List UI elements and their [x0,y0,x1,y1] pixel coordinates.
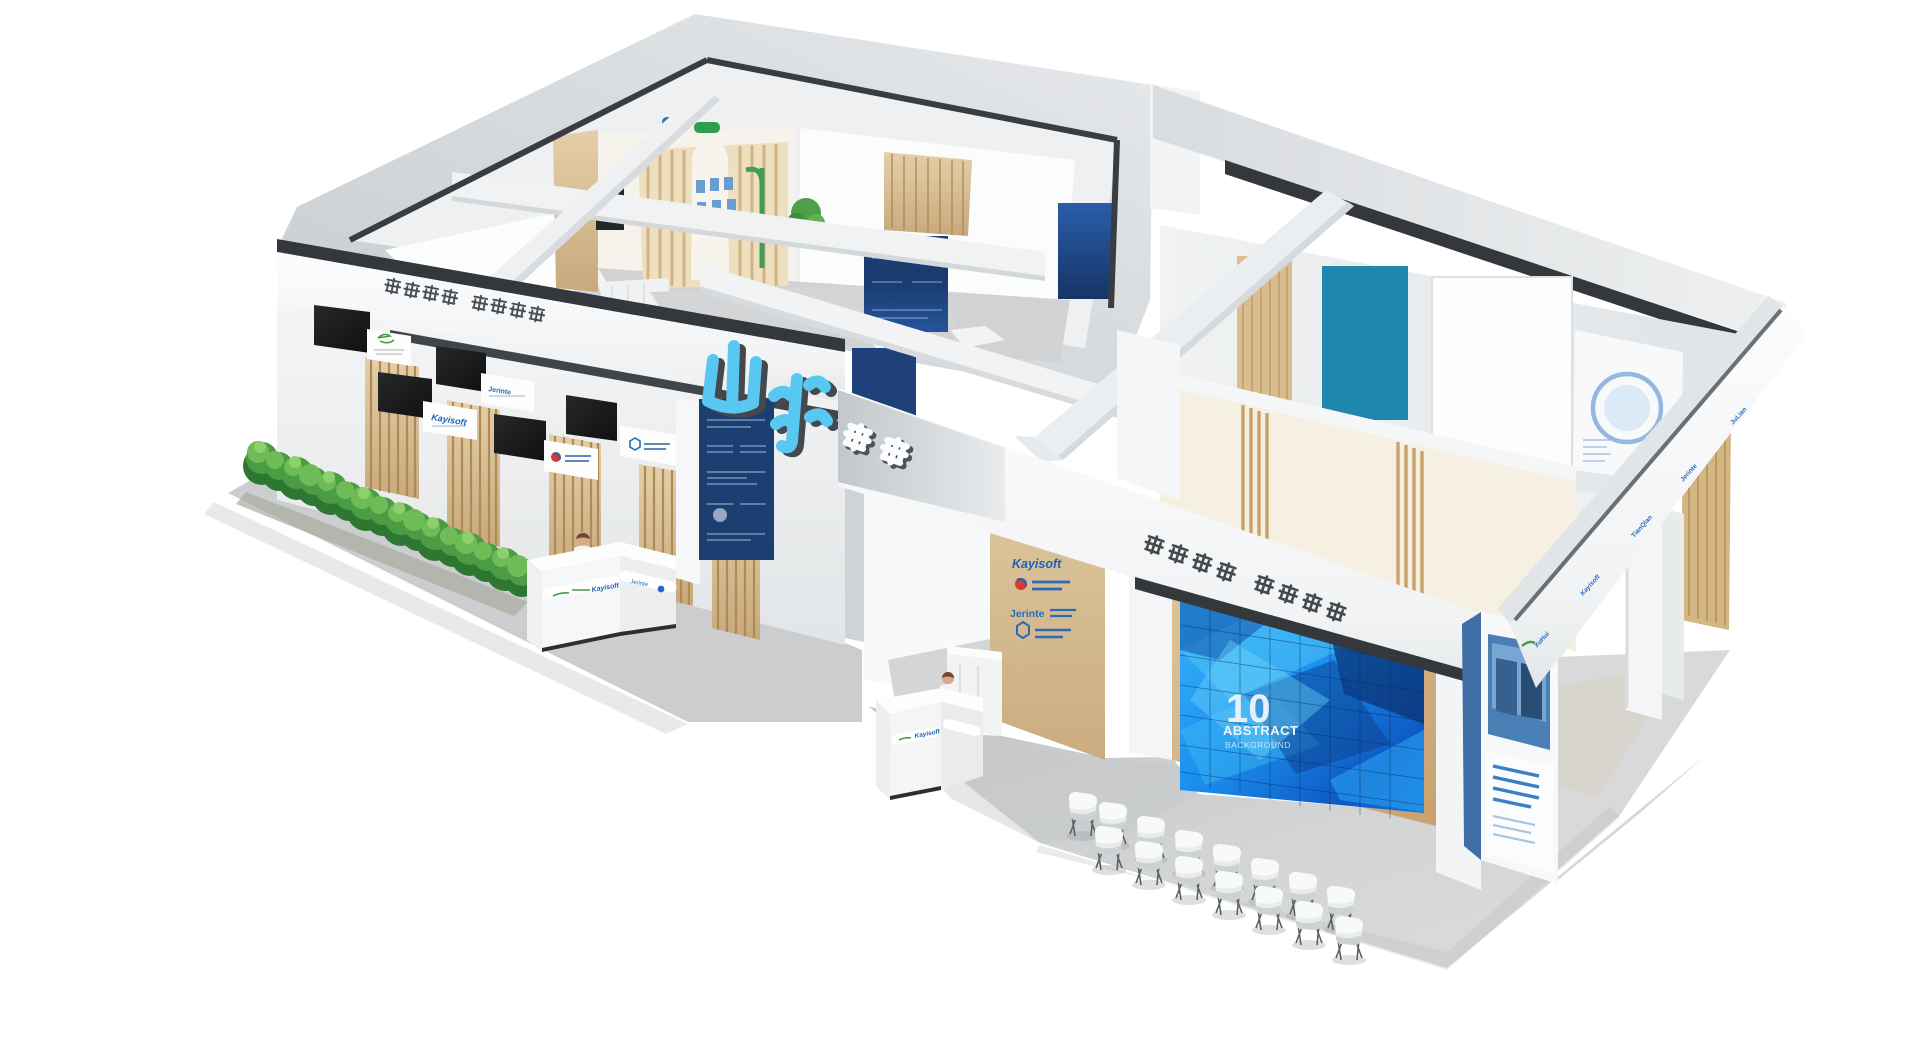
svg-text:Jerinte: Jerinte [1010,608,1045,620]
svg-text:Kayisoft: Kayisoft [1012,557,1062,571]
svg-text:ABSTRACT: ABSTRACT [1223,723,1299,738]
svg-text:BACKGROUND: BACKGROUND [1225,740,1291,750]
